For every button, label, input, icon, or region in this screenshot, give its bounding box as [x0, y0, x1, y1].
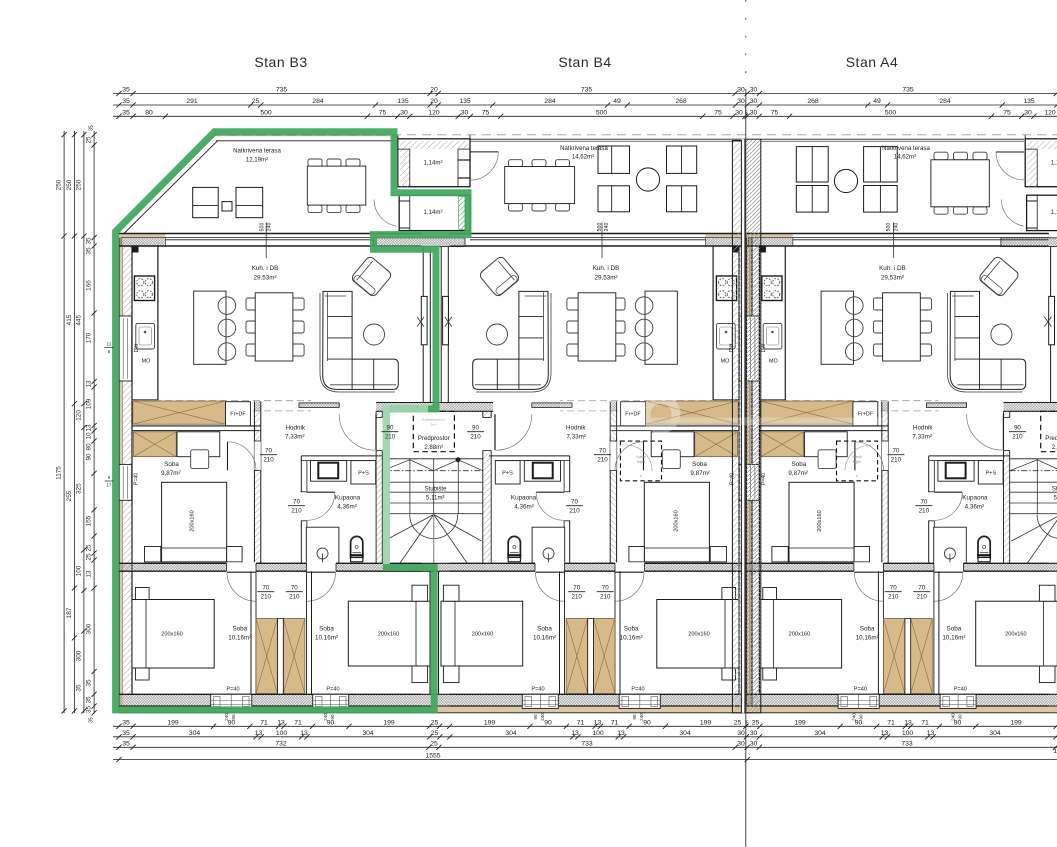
svg-text:210: 210 — [263, 457, 274, 464]
svg-text:1555: 1555 — [425, 753, 440, 760]
svg-text:4,36m²: 4,36m² — [965, 504, 985, 511]
svg-text:250: 250 — [76, 179, 83, 190]
svg-text:210: 210 — [917, 594, 928, 601]
svg-text:304: 304 — [989, 730, 1001, 737]
svg-text:49: 49 — [613, 98, 621, 105]
svg-text:200x160: 200x160 — [1005, 632, 1026, 638]
svg-text:Natkrivena terasa: Natkrivena terasa — [233, 148, 281, 155]
svg-text:P=40: P=40 — [134, 473, 140, 485]
svg-text:P=40: P=40 — [954, 687, 967, 693]
svg-text:284: 284 — [939, 98, 951, 105]
svg-text:284: 284 — [544, 98, 556, 105]
svg-text:500: 500 — [885, 110, 897, 117]
svg-text:13: 13 — [86, 570, 93, 578]
svg-text:10,16m²: 10,16m² — [620, 635, 643, 642]
svg-text:Predprostor: Predprostor — [1045, 435, 1057, 442]
svg-text:5: 5 — [746, 721, 749, 727]
svg-text:187: 187 — [66, 607, 73, 618]
svg-text:71: 71 — [577, 720, 585, 727]
svg-text:135: 135 — [397, 98, 409, 105]
svg-text:30: 30 — [750, 741, 758, 748]
svg-text:200x160: 200x160 — [674, 510, 680, 531]
svg-text:210: 210 — [597, 457, 608, 464]
svg-text:240: 240 — [267, 223, 273, 232]
svg-text:4,36m²: 4,36m² — [514, 504, 534, 511]
svg-text:70: 70 — [262, 585, 269, 592]
svg-text:500: 500 — [596, 110, 608, 117]
svg-text:P=40: P=40 — [531, 687, 544, 693]
svg-text:255: 255 — [66, 490, 73, 501]
svg-text:210: 210 — [600, 594, 611, 601]
svg-text:445: 445 — [76, 315, 83, 326]
svg-text:120: 120 — [428, 110, 440, 117]
svg-text:1,14m²: 1,14m² — [1051, 160, 1057, 167]
svg-text:7,33m²: 7,33m² — [912, 434, 932, 441]
svg-text:71: 71 — [921, 720, 929, 727]
svg-text:25: 25 — [86, 136, 93, 144]
svg-text:199: 199 — [167, 720, 179, 727]
svg-text:30: 30 — [461, 110, 469, 117]
svg-text:735: 735 — [276, 87, 288, 94]
svg-text:25: 25 — [431, 730, 439, 737]
svg-text:135: 135 — [459, 98, 471, 105]
svg-text:25: 25 — [86, 544, 93, 552]
svg-text:bojler: bojler — [637, 460, 646, 464]
svg-text:x: x — [640, 474, 642, 478]
svg-text:70: 70 — [571, 499, 578, 506]
svg-text:325: 325 — [76, 483, 83, 494]
svg-text:13: 13 — [904, 720, 912, 727]
svg-text:90: 90 — [632, 714, 637, 720]
svg-text:200x160: 200x160 — [472, 632, 493, 638]
svg-text:9,87m²: 9,87m² — [788, 470, 808, 477]
svg-text:Kuh. i DB: Kuh. i DB — [252, 265, 279, 272]
svg-text:P=40: P=40 — [326, 687, 339, 693]
svg-text:300: 300 — [86, 623, 93, 634]
svg-text:14,62m²: 14,62m² — [894, 154, 916, 161]
svg-text:Soba: Soba — [232, 626, 247, 633]
svg-text:30: 30 — [750, 110, 758, 117]
svg-text:35: 35 — [89, 125, 95, 131]
svg-text:210: 210 — [891, 457, 902, 464]
svg-text:10,16m²: 10,16m² — [228, 635, 251, 642]
svg-text:70: 70 — [892, 448, 899, 455]
svg-text:70: 70 — [920, 499, 927, 506]
svg-text:1,14m²: 1,14m² — [1051, 209, 1057, 216]
svg-text:210: 210 — [1012, 434, 1023, 441]
svg-text:500: 500 — [597, 223, 603, 232]
svg-text:735: 735 — [581, 87, 593, 94]
svg-text:2,88m²: 2,88m² — [424, 444, 443, 451]
svg-text:1m²: 1m² — [431, 423, 436, 427]
svg-text:71: 71 — [611, 720, 619, 727]
svg-text:25: 25 — [430, 741, 438, 748]
svg-text:75: 75 — [771, 110, 779, 117]
svg-text:Hodnik: Hodnik — [566, 425, 586, 432]
svg-text:71: 71 — [294, 720, 302, 727]
svg-text:100: 100 — [902, 730, 914, 737]
svg-text:210: 210 — [385, 434, 396, 441]
svg-text:29,53m²: 29,53m² — [881, 275, 904, 282]
svg-text:MO: MO — [142, 359, 151, 365]
svg-text:90: 90 — [472, 425, 479, 432]
svg-text:Fr+DF: Fr+DF — [625, 412, 641, 418]
svg-text:30: 30 — [750, 87, 758, 94]
svg-text:35: 35 — [76, 684, 83, 692]
svg-text:25: 25 — [431, 720, 439, 727]
svg-text:35: 35 — [86, 247, 93, 255]
svg-text:Soba: Soba — [164, 461, 179, 468]
svg-text:Stan B3: Stan B3 — [254, 54, 307, 70]
svg-text:71: 71 — [887, 720, 895, 727]
svg-text:7,33m²: 7,33m² — [285, 434, 305, 441]
svg-text:75: 75 — [379, 110, 387, 117]
svg-text:199: 199 — [383, 720, 395, 727]
svg-text:30: 30 — [750, 98, 758, 105]
svg-text:Soba: Soba — [692, 461, 707, 468]
svg-text:70: 70 — [265, 448, 272, 455]
svg-text:415: 415 — [66, 314, 73, 325]
svg-text:210: 210 — [261, 594, 272, 601]
svg-text:13: 13 — [881, 730, 889, 737]
svg-text:13: 13 — [277, 720, 285, 727]
svg-text:90: 90 — [1014, 425, 1021, 432]
svg-text:199: 199 — [700, 720, 712, 727]
svg-text:4,36m²: 4,36m² — [337, 504, 357, 511]
svg-text:5,11m²: 5,11m² — [1053, 495, 1057, 502]
svg-text:13: 13 — [300, 730, 308, 737]
svg-text:35: 35 — [89, 717, 95, 723]
svg-text:166: 166 — [86, 280, 93, 291]
svg-text:P+S: P+S — [502, 471, 513, 477]
svg-text:200x160: 200x160 — [688, 632, 709, 638]
svg-text:Natkrivena terasa: Natkrivena terasa — [882, 145, 930, 152]
svg-text:284: 284 — [312, 98, 324, 105]
svg-text:199: 199 — [484, 720, 496, 727]
svg-text:70: 70 — [890, 585, 897, 592]
svg-text:Fr+DF: Fr+DF — [858, 412, 874, 418]
svg-text:35: 35 — [122, 87, 130, 94]
svg-text:12,19m²: 12,19m² — [246, 157, 268, 164]
svg-text:Kombi: Kombi — [852, 455, 861, 459]
svg-text:304: 304 — [814, 730, 826, 737]
svg-text:210: 210 — [569, 508, 580, 515]
svg-text:210: 210 — [572, 594, 583, 601]
svg-text:90: 90 — [544, 720, 552, 727]
svg-text:x: x — [856, 474, 858, 478]
svg-text:1,14m²: 1,14m² — [424, 160, 443, 167]
svg-text:200x160: 200x160 — [789, 632, 810, 638]
svg-text:10,16m²: 10,16m² — [856, 635, 879, 642]
svg-text:733: 733 — [901, 741, 913, 748]
svg-text:304: 304 — [362, 730, 374, 737]
svg-text:29,53m²: 29,53m² — [594, 275, 617, 282]
svg-text:170: 170 — [86, 332, 93, 343]
svg-text:35: 35 — [122, 730, 130, 737]
svg-text:49: 49 — [873, 98, 881, 105]
svg-text:250: 250 — [66, 179, 73, 190]
svg-text:155: 155 — [86, 515, 93, 526]
svg-text:200x160: 200x160 — [190, 510, 196, 531]
svg-text:100: 100 — [76, 565, 83, 576]
svg-text:75: 75 — [714, 110, 722, 117]
svg-text:P=40: P=40 — [854, 687, 867, 693]
svg-text:70: 70 — [599, 448, 606, 455]
svg-text:bojler: bojler — [853, 460, 862, 464]
svg-text:35: 35 — [122, 98, 130, 105]
svg-text:90: 90 — [228, 720, 236, 727]
svg-text:30: 30 — [735, 110, 743, 117]
svg-text:Kombi: Kombi — [636, 455, 645, 459]
svg-text:199: 199 — [794, 720, 806, 727]
svg-text:20: 20 — [430, 87, 438, 94]
svg-text:500: 500 — [886, 223, 892, 232]
svg-text:500: 500 — [259, 223, 265, 232]
svg-text:13: 13 — [571, 730, 579, 737]
svg-text:35: 35 — [86, 696, 93, 704]
svg-text:90: 90 — [387, 425, 394, 432]
svg-text:Kuh. i DB: Kuh. i DB — [879, 265, 906, 272]
svg-text:Kuh. i DB: Kuh. i DB — [593, 265, 620, 272]
svg-text:733: 733 — [581, 741, 593, 748]
svg-text:30: 30 — [1024, 110, 1032, 117]
svg-text:304: 304 — [679, 730, 691, 737]
svg-text:70: 70 — [573, 585, 580, 592]
svg-text:70: 70 — [918, 585, 925, 592]
svg-text:120: 120 — [1044, 110, 1056, 117]
svg-text:35: 35 — [122, 741, 130, 748]
svg-text:90: 90 — [643, 720, 651, 727]
svg-text:13: 13 — [86, 380, 93, 388]
svg-text:10,16m²: 10,16m² — [533, 635, 556, 642]
svg-text:210: 210 — [888, 594, 899, 601]
svg-text:P+S: P+S — [358, 471, 369, 477]
svg-text:5,11m²: 5,11m² — [426, 495, 445, 502]
svg-text:100: 100 — [592, 730, 604, 737]
svg-text:Soba: Soba — [624, 626, 639, 633]
svg-text:Kupaona: Kupaona — [962, 495, 988, 502]
svg-text:DW: DW — [761, 344, 767, 353]
svg-text:10,16m²: 10,16m² — [942, 635, 965, 642]
svg-text:250: 250 — [56, 179, 63, 190]
svg-text:35: 35 — [86, 679, 93, 687]
svg-text:5: 5 — [745, 111, 748, 117]
svg-text:90: 90 — [533, 714, 538, 720]
svg-text:80: 80 — [145, 110, 153, 117]
svg-text:35: 35 — [122, 720, 130, 727]
svg-text:1175: 1175 — [56, 466, 63, 480]
svg-text:35: 35 — [86, 706, 93, 714]
svg-text:210: 210 — [470, 434, 481, 441]
svg-text:Kupaona: Kupaona — [511, 495, 537, 502]
svg-text:Predprostor: Predprostor — [418, 435, 450, 442]
svg-text:210: 210 — [289, 594, 300, 601]
svg-text:17: 17 — [107, 483, 112, 488]
svg-text:Kvadratna ploča: Kvadratna ploča — [422, 418, 445, 422]
svg-text:90: 90 — [327, 720, 335, 727]
svg-text:30: 30 — [737, 730, 745, 737]
svg-text:240: 240 — [604, 223, 610, 232]
svg-text:Soba: Soba — [860, 626, 875, 633]
svg-text:735: 735 — [902, 87, 914, 94]
svg-text:13: 13 — [86, 424, 93, 432]
svg-text:29,53m²: 29,53m² — [253, 275, 276, 282]
svg-text:Stan A4: Stan A4 — [846, 54, 899, 70]
svg-text:Fr+DF: Fr+DF — [230, 412, 246, 418]
svg-text:71: 71 — [260, 720, 268, 727]
svg-text:DW: DW — [134, 344, 140, 353]
svg-text:Stubište: Stubište — [1052, 486, 1057, 493]
svg-text:13: 13 — [617, 730, 625, 737]
svg-text:200x160: 200x160 — [161, 632, 182, 638]
svg-text:70: 70 — [293, 499, 300, 506]
svg-text:732: 732 — [275, 741, 287, 748]
svg-text:240: 240 — [893, 223, 899, 232]
svg-text:2,88m²: 2,88m² — [1052, 444, 1057, 451]
svg-text:Soba: Soba — [792, 461, 807, 468]
svg-text:120: 120 — [76, 410, 83, 421]
svg-text:210: 210 — [291, 508, 302, 515]
svg-text:25: 25 — [752, 720, 760, 727]
svg-text:304: 304 — [189, 730, 201, 737]
svg-text:Stan B4: Stan B4 — [558, 54, 611, 70]
svg-text:MO: MO — [769, 359, 778, 365]
svg-text:P=40: P=40 — [631, 687, 644, 693]
svg-text:90: 90 — [86, 453, 93, 461]
svg-text:500: 500 — [260, 110, 272, 117]
svg-text:1: 1 — [1053, 748, 1057, 755]
svg-text:80: 80 — [86, 443, 93, 451]
svg-text:14,62m²: 14,62m² — [572, 154, 594, 161]
svg-text:P=40: P=40 — [761, 473, 767, 485]
svg-text:MO: MO — [721, 359, 730, 365]
svg-text:Soba: Soba — [319, 626, 334, 633]
svg-text:P=40: P=40 — [226, 687, 239, 693]
svg-text:Soba: Soba — [947, 626, 962, 633]
svg-text:30: 30 — [737, 741, 745, 748]
svg-text:7,33m²: 7,33m² — [566, 434, 586, 441]
svg-text:P+S: P+S — [986, 471, 997, 477]
svg-text:35: 35 — [86, 237, 93, 245]
svg-text:Stubište: Stubište — [424, 486, 447, 493]
svg-text:Hodnik: Hodnik — [285, 425, 305, 432]
svg-text:291: 291 — [186, 98, 198, 105]
svg-text:Soba: Soba — [537, 626, 552, 633]
svg-text:200x160: 200x160 — [817, 510, 823, 531]
svg-text:268: 268 — [675, 98, 687, 105]
svg-text:210: 210 — [919, 508, 930, 515]
svg-text:13: 13 — [927, 730, 935, 737]
svg-text:12: 12 — [107, 342, 112, 347]
svg-text:199: 199 — [1010, 720, 1022, 727]
svg-text:200x160: 200x160 — [378, 632, 399, 638]
svg-text:100: 100 — [276, 730, 288, 737]
svg-text:75: 75 — [482, 110, 490, 117]
svg-text:Natkrivena terasa: Natkrivena terasa — [560, 145, 608, 152]
svg-text:Hodnik: Hodnik — [913, 425, 933, 432]
svg-text:10: 10 — [86, 432, 93, 440]
svg-text:10,16m²: 10,16m² — [315, 635, 338, 642]
svg-text:35: 35 — [122, 110, 130, 117]
svg-text:30: 30 — [737, 98, 745, 105]
svg-text:70: 70 — [602, 585, 609, 592]
svg-text:25: 25 — [734, 720, 742, 727]
svg-text:30: 30 — [750, 730, 758, 737]
svg-text:20: 20 — [430, 98, 438, 105]
svg-text:30: 30 — [737, 87, 745, 94]
svg-text:30: 30 — [400, 110, 408, 117]
svg-text:9,87m²: 9,87m² — [690, 470, 710, 477]
svg-text:9,87m²: 9,87m² — [161, 470, 181, 477]
svg-text:90: 90 — [855, 720, 863, 727]
svg-text:304: 304 — [505, 730, 517, 737]
svg-text:P=40: P=40 — [730, 473, 736, 485]
svg-text:1,14m²: 1,14m² — [424, 209, 443, 216]
svg-text:75: 75 — [1003, 110, 1011, 117]
svg-text:DW: DW — [729, 344, 735, 353]
svg-text:90: 90 — [954, 720, 962, 727]
svg-text:135: 135 — [1023, 98, 1035, 105]
svg-text:109: 109 — [86, 398, 93, 409]
svg-text:13: 13 — [594, 720, 602, 727]
svg-text:Kupaona: Kupaona — [335, 495, 361, 502]
svg-text:70: 70 — [291, 585, 298, 592]
svg-text:25: 25 — [252, 98, 260, 105]
svg-text:13: 13 — [255, 730, 263, 737]
svg-text:268: 268 — [807, 98, 819, 105]
svg-text:300: 300 — [76, 650, 83, 661]
svg-text:25: 25 — [86, 553, 93, 561]
